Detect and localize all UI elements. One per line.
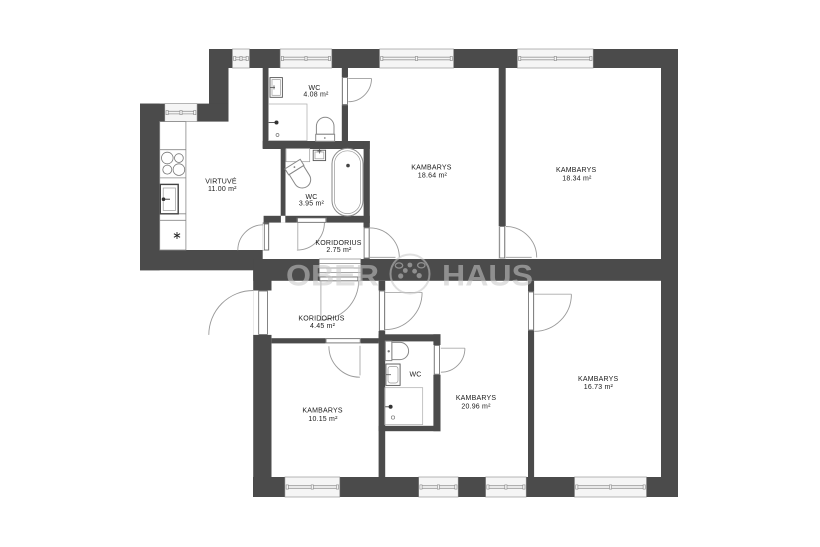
svg-text:10.15 m²: 10.15 m² xyxy=(308,416,338,423)
svg-text:WC: WC xyxy=(409,372,421,379)
svg-text:3.95 m²: 3.95 m² xyxy=(299,201,325,208)
svg-text:VIRTUVĖ: VIRTUVĖ xyxy=(205,177,237,186)
svg-text:11.00 m²: 11.00 m² xyxy=(208,186,237,193)
svg-text:4.45 m²: 4.45 m² xyxy=(310,323,336,330)
svg-text:KAMBARYS: KAMBARYS xyxy=(578,376,619,383)
svg-text:16.73 m²: 16.73 m² xyxy=(584,384,614,391)
svg-text:HAUS: HAUS xyxy=(442,260,533,293)
svg-text:KAMBARYS: KAMBARYS xyxy=(556,167,597,174)
svg-text:20.96 m²: 20.96 m² xyxy=(461,403,491,410)
svg-text:KAMBARYS: KAMBARYS xyxy=(456,395,497,402)
svg-text:KAMBARYS: KAMBARYS xyxy=(302,408,343,415)
svg-text:18.64 m²: 18.64 m² xyxy=(418,173,448,180)
svg-text:KAMBARYS: KAMBARYS xyxy=(411,165,452,172)
svg-text:OBER: OBER xyxy=(286,260,379,293)
svg-text:KORIDORIUS: KORIDORIUS xyxy=(298,316,344,323)
svg-text:18.34 m²: 18.34 m² xyxy=(562,176,592,183)
svg-text:2.75 m²: 2.75 m² xyxy=(326,247,352,254)
svg-text:4.08 m²: 4.08 m² xyxy=(303,91,329,98)
